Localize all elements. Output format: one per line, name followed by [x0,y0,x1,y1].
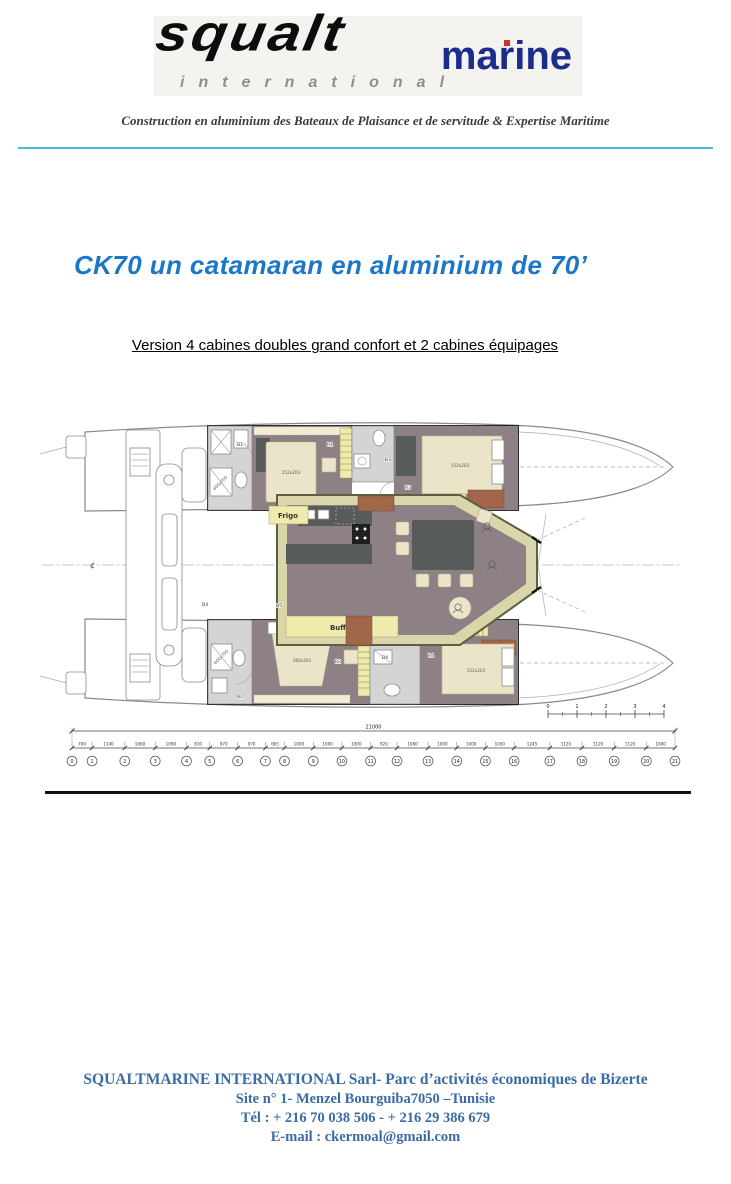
svg-text:15: 15 [482,759,488,765]
svg-text:11: 11 [368,759,374,765]
page: squalt marine international Construction… [0,0,731,1184]
stairs-forward [358,496,394,511]
centerline-symbol: ¢ [90,561,95,570]
section-divider [45,791,691,794]
svg-text:0: 0 [70,759,73,765]
stove [352,524,370,544]
svg-text:1: 1 [91,759,94,765]
bed-r2-size: 160x201 [293,658,312,663]
room-code-r2: R2 [335,659,341,665]
company-logo: squalt marine international [154,16,582,96]
svg-text:7: 7 [264,759,267,765]
galley-island [286,544,372,564]
svg-text:810: 810 [194,742,202,747]
footer-line-email: E-mail : ckermoal@gmail.com [0,1128,731,1147]
svg-text:6: 6 [236,759,239,765]
toilet-icon [233,650,245,666]
header-divider [18,147,713,149]
svg-text:12: 12 [394,759,400,765]
toilet-icon [384,684,400,696]
svg-text:970: 970 [220,742,228,747]
toilet-icon [235,472,247,488]
svg-text:21: 21 [672,759,678,765]
room-code-d5: D5 [276,603,283,609]
svg-text:3: 3 [633,704,636,710]
footer-line-address: Site n° 1- Menzel Bourguiba7050 –Tunisie [0,1090,731,1109]
page-title: CK70 un catamaran en aluminium de 70’ [74,250,587,281]
svg-text:1000: 1000 [655,742,666,747]
svg-text:20: 20 [643,759,649,765]
svg-text:1000: 1000 [322,742,333,747]
svg-text:3: 3 [154,759,157,765]
deck-hatch [182,448,206,502]
svg-text:4: 4 [185,759,188,765]
logo-international-text: international [180,74,458,92]
logo-red-accent [504,40,510,46]
room-code-b3: B3 [385,457,391,463]
svg-text:1000: 1000 [437,742,448,747]
svg-text:665: 665 [271,742,279,747]
bed-r3-size: 152x203 [451,463,470,468]
room-code-d4: D4 [202,602,209,608]
svg-text:1245: 1245 [527,742,538,747]
svg-text:1060: 1060 [135,742,146,747]
svg-text:17: 17 [547,759,553,765]
footer-line-company: SQUALTMARINE INTERNATIONAL Sarl- Parc d’… [0,1070,731,1090]
svg-text:1000: 1000 [495,742,506,747]
room-code-b4: B4 [382,655,388,661]
scale-bar: 01234 [546,704,665,718]
svg-text:21000: 21000 [366,725,382,731]
svg-text:920: 920 [380,742,388,747]
svg-text:1080: 1080 [407,742,418,747]
fridge-label: Frigo [278,512,298,520]
floorplan-drawing: ¢ [40,418,695,778]
svg-text:1: 1 [575,704,578,710]
svg-text:0: 0 [546,704,549,710]
footer-line-phone: Tél : + 216 70 038 506 - + 216 29 386 67… [0,1109,731,1128]
svg-text:1090: 1090 [166,742,177,747]
svg-text:1000: 1000 [351,742,362,747]
room-code-r4: R4 [428,653,434,659]
svg-text:1000: 1000 [466,742,477,747]
svg-text:13: 13 [425,759,431,765]
svg-text:2: 2 [123,759,126,765]
svg-text:18: 18 [579,759,585,765]
bed-r4-size: 152x203 [467,668,486,673]
side-table [449,597,471,619]
room-code-r3: R3 [405,485,411,491]
footer-address-block: SQUALTMARINE INTERNATIONAL Sarl- Parc d’… [0,1070,731,1147]
room-code-r1: R1 [327,442,333,448]
svg-text:1120: 1120 [625,742,636,747]
svg-text:1140: 1140 [103,742,114,747]
svg-text:9: 9 [312,759,315,765]
svg-text:8: 8 [283,759,286,765]
svg-text:19: 19 [611,759,617,765]
room-code-b2: B2 [237,694,243,700]
svg-text:1000: 1000 [294,742,305,747]
deck-hatch [182,628,206,682]
svg-text:10: 10 [339,759,345,765]
svg-text:4: 4 [662,704,665,710]
company-tagline: Construction en aluminium des Bateaux de… [0,113,731,129]
svg-text:16: 16 [511,759,517,765]
svg-text:970: 970 [248,742,256,747]
stairs-aft [346,616,372,645]
bed-r1-size: 152x203 [282,470,301,475]
svg-text:1120: 1120 [593,742,604,747]
toilet-icon [373,430,385,446]
dimension-strip: 2100001234567891011121314151617181920217… [67,725,680,766]
dining-table [412,520,474,570]
page-subtitle: Version 4 cabines doubles grand confort … [0,337,690,354]
svg-text:1120: 1120 [561,742,572,747]
svg-text:2: 2 [604,704,607,710]
logo-squalt-text: squalt [152,4,351,63]
svg-text:700: 700 [78,742,86,747]
room-code-b1: B1 [237,442,243,448]
svg-text:5: 5 [208,759,211,765]
svg-text:14: 14 [454,759,460,765]
